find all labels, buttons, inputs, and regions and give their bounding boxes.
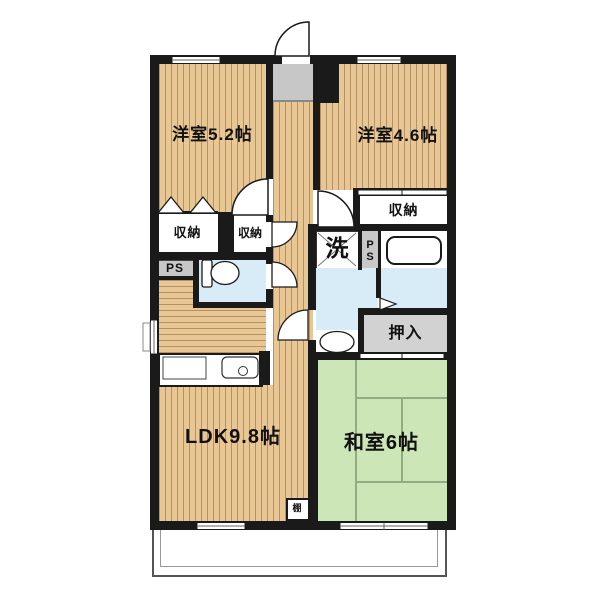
wall-bath-left-upper — [308, 231, 316, 310]
balcony-inner-line — [160, 530, 438, 567]
vanity-counter — [316, 330, 358, 354]
wall-hall-left-upper — [266, 55, 273, 179]
laundry-label: 洗 — [316, 236, 358, 261]
wall-toilet-bottom — [193, 302, 273, 308]
wall-oshiire-top — [358, 308, 448, 315]
wall-washroom-bathroom — [376, 268, 381, 298]
floorplan-canvas: 洋室5.2帖 洋室4.6帖 LDK9.8帖 和室6帖 収納 収納 収納 PS P… — [0, 0, 600, 600]
wall-bath-top — [308, 224, 456, 231]
bathtub-icon — [386, 236, 442, 265]
wall-kitchen-end — [259, 351, 270, 385]
closet3-label: 収納 — [360, 203, 447, 218]
wall-bedroom2-bottom — [353, 188, 456, 196]
kitchen-counter — [158, 353, 263, 387]
ldk-label: LDK9.8帖 — [158, 426, 308, 448]
wall-hall-left-stub1 — [266, 215, 273, 222]
wall-top — [150, 55, 456, 64]
hallway-floor — [273, 102, 313, 385]
genkan-entry-area — [273, 64, 313, 102]
wall-washitsu-top — [308, 352, 456, 360]
oshiire-label: 押入 — [364, 315, 447, 353]
bedroom2-label: 洋室4.6帖 — [336, 127, 460, 146]
closet2-label: 収納 — [232, 227, 268, 240]
ps2-label: PS — [362, 232, 378, 269]
bedroom1-label: 洋室5.2帖 — [150, 126, 275, 145]
closet1-label: 収納 — [157, 226, 218, 240]
entrance-door-icon — [275, 22, 309, 56]
shelf-label: 棚 — [286, 504, 308, 514]
wall-bottom — [150, 521, 456, 530]
toilet-room — [199, 258, 266, 302]
closet2-front-line — [234, 211, 266, 214]
tatami-line — [355, 481, 447, 483]
ps1-label: PS — [157, 260, 193, 277]
wall-closets-bottom — [150, 252, 273, 260]
wall-ps2-right — [378, 231, 381, 270]
wall-toilet-left — [193, 260, 199, 308]
closet1-front-line — [155, 211, 218, 214]
wall-genkan-notch — [313, 55, 339, 103]
washitsu-label: 和室6帖 — [316, 432, 447, 454]
